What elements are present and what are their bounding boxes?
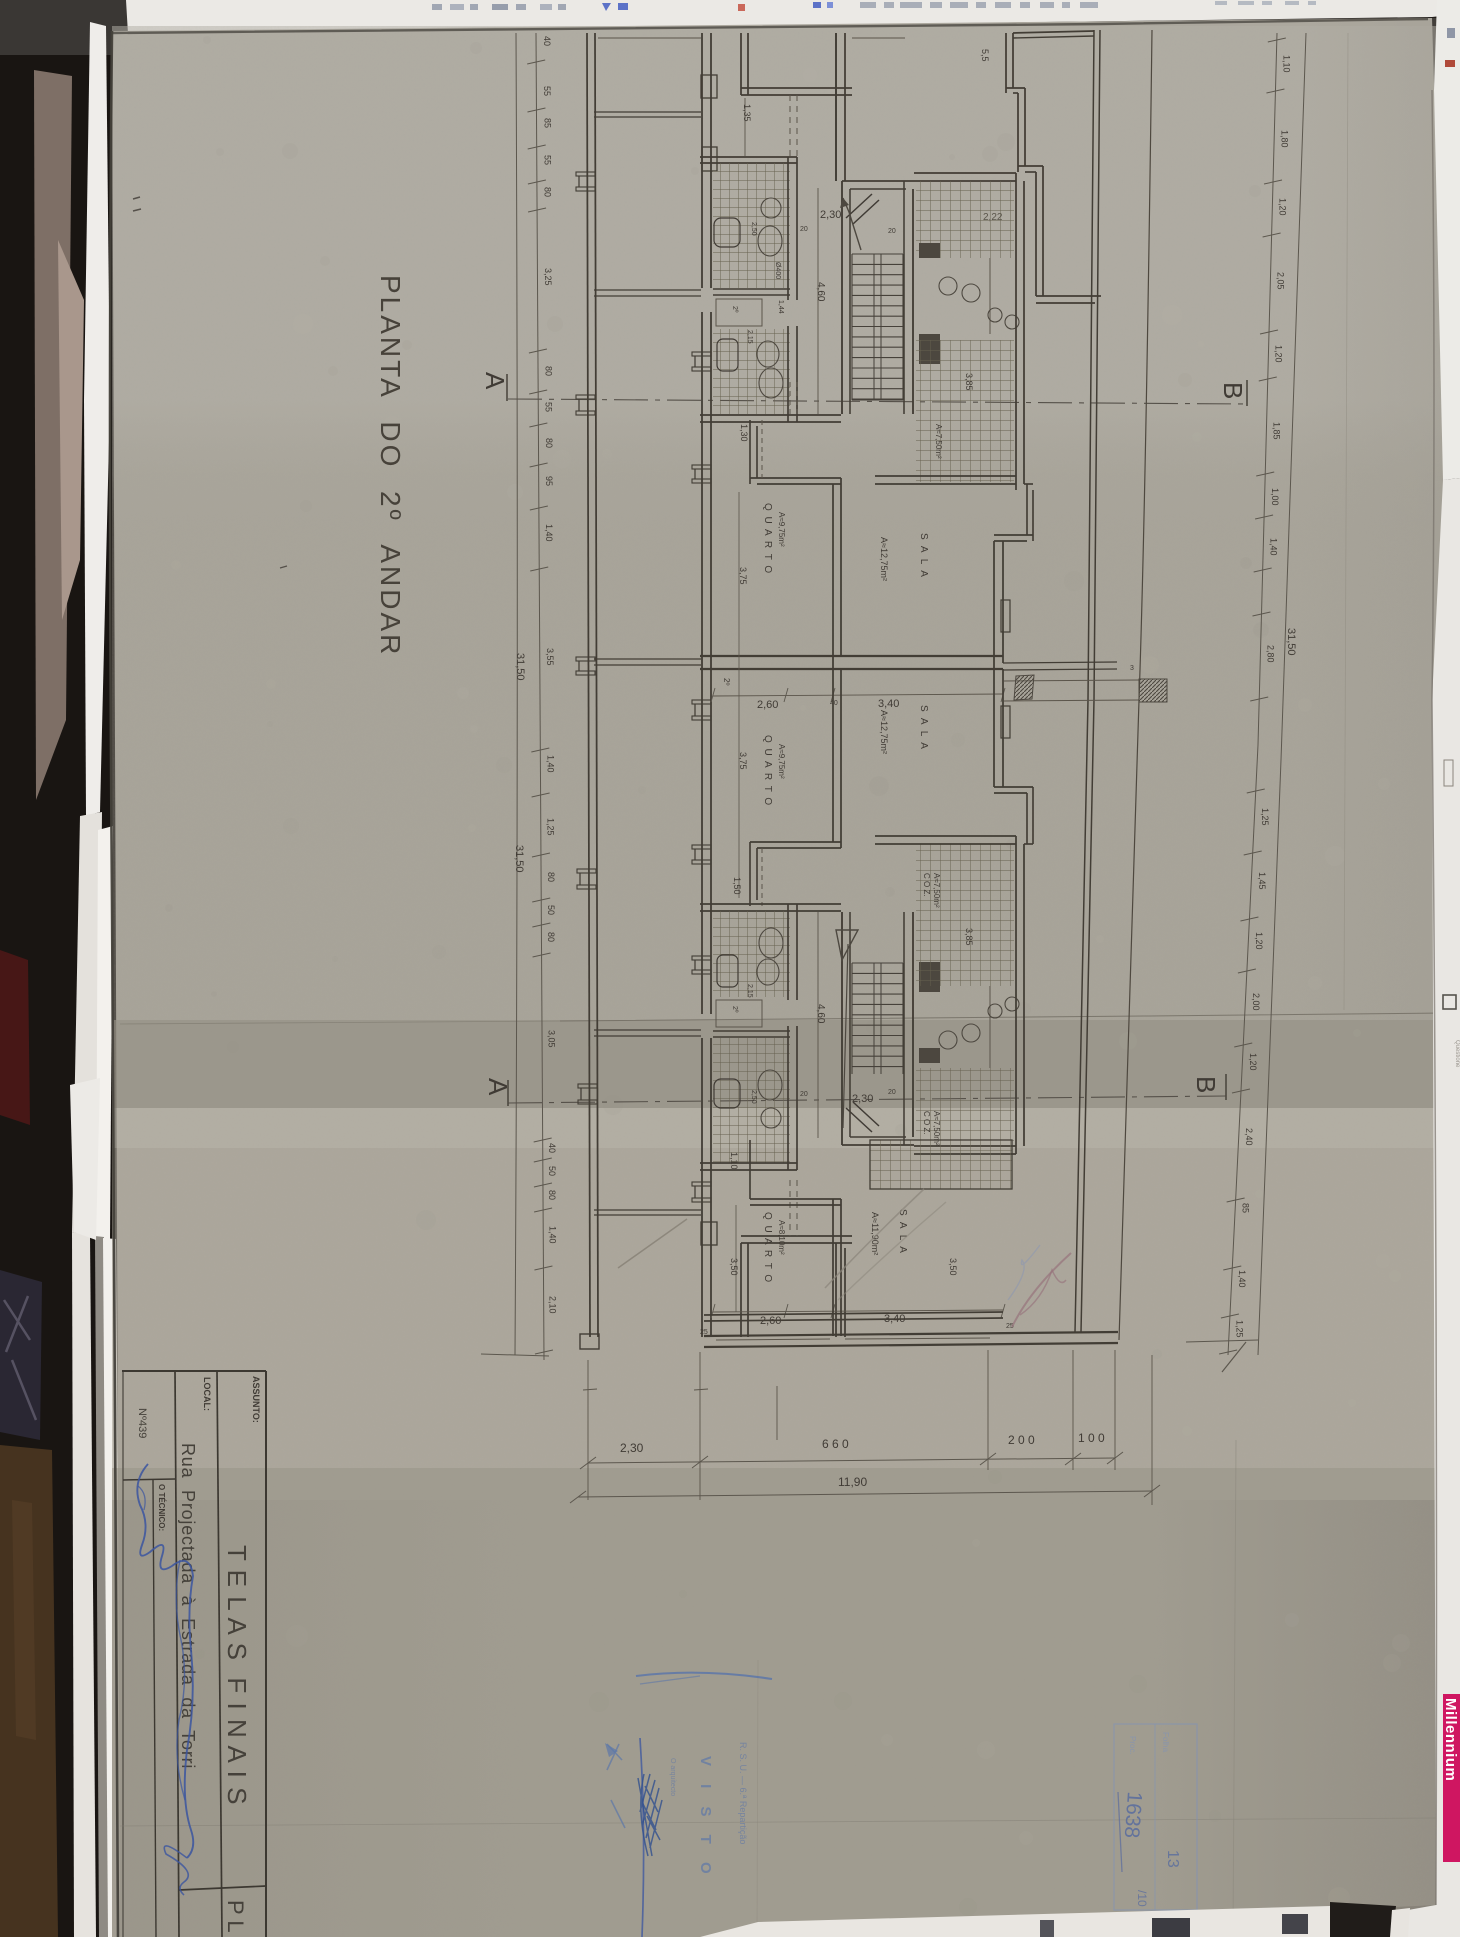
svg-text:50: 50	[546, 905, 556, 915]
svg-text:/10: /10	[1135, 1890, 1149, 1907]
svg-text:20: 20	[800, 1091, 808, 1098]
svg-text:1,35: 1,35	[742, 104, 752, 122]
svg-text:2º: 2º	[731, 306, 738, 313]
svg-text:5,5: 5,5	[980, 49, 990, 62]
svg-text:95: 95	[544, 476, 554, 486]
svg-text:31,50: 31,50	[1285, 628, 1297, 656]
svg-text:31,50: 31,50	[514, 653, 526, 681]
svg-text:LOCAL:: LOCAL:	[202, 1377, 212, 1411]
svg-text:20: 20	[800, 226, 808, 233]
svg-text:A≈9,75m²: A≈9,75m²	[777, 744, 786, 779]
svg-text:2,15: 2,15	[746, 984, 753, 998]
svg-text:4,60: 4,60	[815, 1004, 826, 1024]
svg-text:40: 40	[547, 1143, 557, 1153]
svg-text:1,20: 1,20	[1254, 932, 1264, 950]
svg-text:Ø400: Ø400	[774, 262, 781, 279]
svg-text:20: 20	[888, 1089, 896, 1096]
svg-text:1,40: 1,40	[547, 1226, 557, 1244]
svg-text:31,50: 31,50	[513, 845, 525, 873]
svg-text:A≈12,75m²: A≈12,75m²	[879, 537, 889, 581]
svg-text:V I S T O: V I S T O	[697, 1756, 714, 1881]
svg-text:A≈7,50m²: A≈7,50m²	[934, 424, 943, 459]
svg-text:1,10: 1,10	[1281, 55, 1291, 73]
svg-text:2,50: 2,50	[750, 222, 757, 236]
svg-text:1,44: 1,44	[777, 300, 784, 314]
svg-text:2,80: 2,80	[1266, 645, 1276, 663]
svg-text:4,60: 4,60	[815, 282, 826, 302]
svg-text:80: 80	[544, 438, 554, 448]
svg-text:B: B	[1191, 1076, 1221, 1093]
svg-text:2º: 2º	[722, 678, 731, 685]
svg-text:Q U A R T O: Q U A R T O	[762, 503, 773, 575]
svg-text:A≈9,75m²: A≈9,75m²	[777, 512, 786, 547]
svg-text:R. S. U. — 6.ª Repartição: R. S. U. — 6.ª Repartição	[738, 1742, 748, 1844]
svg-text:Q U A R T O: Q U A R T O	[762, 735, 773, 807]
svg-text:P L: P L	[223, 1900, 248, 1933]
svg-text:B: B	[1218, 382, 1248, 399]
svg-text:Millennium: Millennium	[1442, 1698, 1459, 1781]
svg-text:20: 20	[888, 228, 896, 235]
svg-text:1,45: 1,45	[1257, 872, 1267, 890]
svg-text:80: 80	[546, 932, 556, 942]
svg-text:1 0 0: 1 0 0	[1078, 1431, 1105, 1445]
svg-text:1,20: 1,20	[1248, 1053, 1258, 1071]
svg-text:3,85: 3,85	[964, 373, 974, 391]
svg-text:1,40: 1,40	[545, 755, 555, 773]
svg-text:2,30: 2,30	[820, 209, 841, 221]
svg-text:40: 40	[830, 700, 838, 707]
svg-text:80: 80	[546, 872, 556, 882]
svg-text:Proc.: Proc.	[1128, 1736, 1137, 1755]
svg-text:2,05: 2,05	[1276, 272, 1286, 290]
svg-text:3,50: 3,50	[948, 1258, 958, 1276]
svg-text:2,00: 2,00	[1251, 993, 1261, 1011]
svg-text:Questione: Questione	[1454, 1040, 1460, 1068]
svg-text:1,25: 1,25	[1260, 808, 1270, 826]
svg-text:1,40: 1,40	[1269, 538, 1279, 556]
svg-text:S A L A: S A L A	[897, 1209, 908, 1255]
svg-text:3,40: 3,40	[878, 698, 899, 710]
svg-text:2,15: 2,15	[746, 330, 753, 344]
svg-text:2,50: 2,50	[750, 1090, 757, 1104]
svg-text:O arquitecto: O arquitecto	[669, 1758, 676, 1796]
svg-text:A: A	[480, 372, 510, 390]
svg-text:80: 80	[543, 187, 553, 197]
svg-text:1638: 1638	[1120, 1791, 1146, 1839]
svg-text:Q U A R T O: Q U A R T O	[762, 1212, 773, 1284]
svg-text:80: 80	[547, 1190, 557, 1200]
svg-text:2 0 0: 2 0 0	[1008, 1433, 1035, 1447]
svg-text:1,40: 1,40	[544, 524, 554, 542]
svg-text:2,60: 2,60	[757, 699, 778, 711]
svg-text:3,75: 3,75	[738, 567, 748, 585]
svg-text:50: 50	[547, 1166, 557, 1176]
svg-text:Nº439: Nº439	[136, 1408, 148, 1438]
svg-text:1,20: 1,20	[1274, 345, 1284, 363]
svg-text:3,50: 3,50	[729, 1258, 739, 1276]
svg-text:T E L A S F I N A I S: T E L A S F I N A I S	[222, 1545, 252, 1805]
svg-text:2,40: 2,40	[1244, 1128, 1254, 1146]
svg-text:A≈7,50m²: A≈7,50m²	[932, 873, 941, 908]
svg-text:85: 85	[542, 118, 552, 128]
svg-text:55: 55	[542, 86, 552, 96]
svg-text:6 6 0: 6 6 0	[822, 1437, 849, 1451]
svg-text:85: 85	[1240, 1203, 1250, 1213]
svg-text:1,25: 1,25	[546, 818, 556, 836]
svg-text:1,00: 1,00	[1270, 488, 1280, 506]
svg-text:A≈12,75m²: A≈12,75m²	[879, 710, 889, 754]
svg-text:1,25: 1,25	[1235, 1320, 1245, 1338]
svg-text:S A L A: S A L A	[918, 705, 929, 751]
svg-text:1,85: 1,85	[1272, 422, 1282, 440]
svg-text:80: 80	[544, 366, 554, 376]
svg-text:1,50: 1,50	[732, 877, 742, 895]
svg-text:3,25: 3,25	[543, 268, 553, 286]
svg-text:40: 40	[542, 36, 552, 46]
svg-text:55: 55	[544, 402, 554, 412]
svg-text:ASSUNTO:: ASSUNTO:	[251, 1376, 261, 1423]
svg-text:S A L A: S A L A	[918, 533, 929, 579]
svg-text:3,85: 3,85	[964, 928, 974, 946]
svg-text:55: 55	[543, 155, 553, 165]
svg-text:Rua Projectada à Estrada d: Rua Projectada à Estrada da Torri	[178, 1443, 198, 1769]
svg-text:1,30: 1,30	[739, 424, 749, 442]
svg-text:2,30: 2,30	[620, 1441, 644, 1455]
svg-text:1,20: 1,20	[1278, 198, 1288, 216]
svg-text:2,22: 2,22	[983, 212, 1003, 223]
svg-text:11,90: 11,90	[838, 1475, 867, 1489]
svg-text:13: 13	[1164, 1850, 1181, 1868]
svg-text:3,55: 3,55	[545, 648, 555, 666]
svg-text:2º: 2º	[731, 1006, 738, 1013]
svg-text:3: 3	[1130, 665, 1134, 672]
svg-text:3,05: 3,05	[547, 1030, 557, 1048]
svg-text:2,10: 2,10	[548, 1296, 558, 1314]
svg-text:PLANTA DO 2º ANDAR: PLANTA DO 2º ANDAR	[375, 275, 406, 657]
svg-text:C O Z.: C O Z.	[922, 873, 931, 897]
svg-text:A≈8,10m²: A≈8,10m²	[777, 1220, 786, 1255]
svg-text:1,80: 1,80	[1279, 130, 1289, 148]
svg-text:Folha: Folha	[1161, 1732, 1170, 1753]
svg-text:1,40: 1,40	[1237, 1270, 1247, 1288]
svg-text:3,75: 3,75	[738, 752, 748, 770]
svg-text:O TÉCNICO:: O TÉCNICO:	[157, 1484, 166, 1531]
svg-text:C O Z.: C O Z.	[922, 1111, 931, 1135]
